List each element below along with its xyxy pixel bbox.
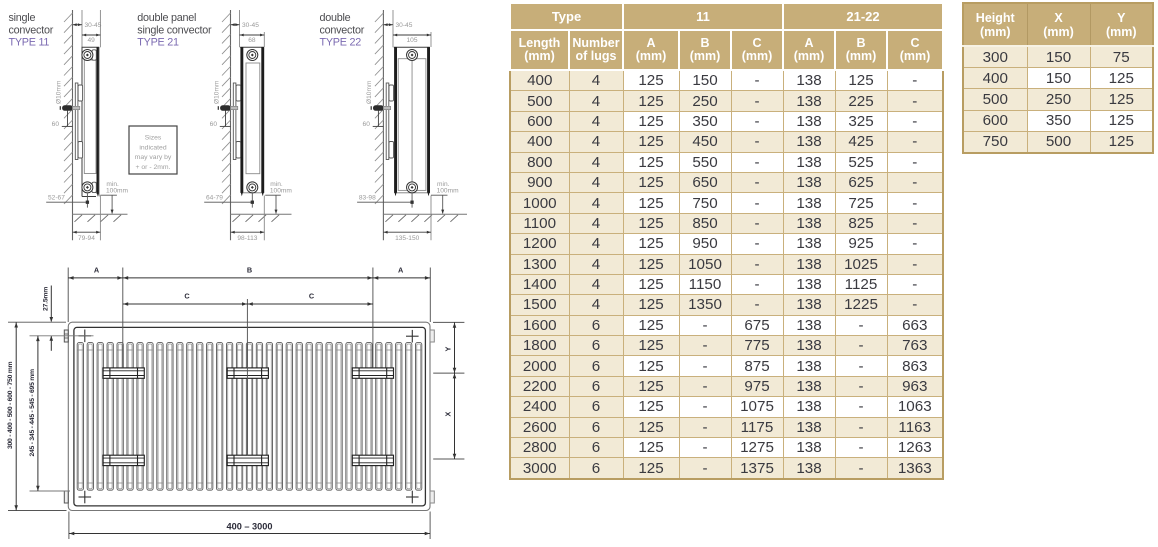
svg-text:79-94: 79-94	[78, 235, 95, 242]
svg-text:68: 68	[248, 37, 256, 44]
svg-text:60: 60	[363, 121, 371, 128]
svg-text:C: C	[309, 292, 315, 301]
svg-text:30-45: 30-45	[242, 22, 259, 29]
svg-text:A: A	[94, 265, 100, 274]
svg-text:60: 60	[52, 121, 60, 128]
svg-text:Y: Y	[444, 347, 453, 352]
svg-text:100mm: 100mm	[106, 188, 128, 195]
svg-text:100mm: 100mm	[270, 188, 292, 195]
svg-text:135-150: 135-150	[395, 235, 420, 242]
svg-text:may vary by: may vary by	[135, 154, 172, 161]
svg-text:C: C	[184, 292, 190, 301]
svg-text:TYPE 11: TYPE 11	[9, 37, 50, 49]
svg-text:Ø10mm: Ø10mm	[366, 80, 373, 104]
svg-text:TYPE 22: TYPE 22	[320, 37, 362, 49]
svg-text:83-98: 83-98	[359, 195, 376, 202]
svg-text:+ or - 2mm.: + or - 2mm.	[136, 164, 171, 171]
svg-text:300 - 400 - 500 - 600 - 750 mm: 300 - 400 - 500 - 600 - 750 mm	[7, 361, 14, 449]
svg-text:100mm: 100mm	[437, 188, 459, 195]
svg-text:49: 49	[88, 37, 96, 44]
svg-text:double panel: double panel	[137, 12, 196, 24]
svg-text:64-79: 64-79	[206, 195, 223, 202]
svg-text:Ø10mm: Ø10mm	[213, 80, 220, 104]
svg-text:indicated: indicated	[139, 144, 166, 151]
svg-text:30-45: 30-45	[396, 22, 413, 29]
svg-text:Ø10mm: Ø10mm	[55, 80, 62, 104]
svg-text:98-113: 98-113	[237, 235, 257, 242]
svg-text:TYPE 21: TYPE 21	[137, 37, 179, 49]
svg-text:52-67: 52-67	[48, 195, 65, 202]
svg-text:60: 60	[210, 121, 218, 128]
svg-text:double: double	[320, 12, 351, 24]
svg-text:single: single	[9, 12, 36, 24]
svg-text:X: X	[444, 412, 453, 417]
svg-text:Sizes: Sizes	[145, 135, 162, 142]
svg-text:B: B	[247, 265, 252, 274]
svg-text:30-45: 30-45	[85, 22, 102, 29]
svg-text:105: 105	[406, 37, 417, 44]
svg-text:single convector: single convector	[137, 24, 212, 36]
svg-text:245 - 345 - 445 - 545 - 695 mm: 245 - 345 - 445 - 545 - 695 mm	[29, 369, 36, 457]
svg-text:27.5mm: 27.5mm	[43, 287, 50, 311]
svg-text:A: A	[398, 265, 404, 274]
svg-text:convector: convector	[9, 24, 54, 36]
svg-text:convector: convector	[320, 24, 365, 36]
svg-text:400 – 3000: 400 – 3000	[227, 522, 273, 532]
